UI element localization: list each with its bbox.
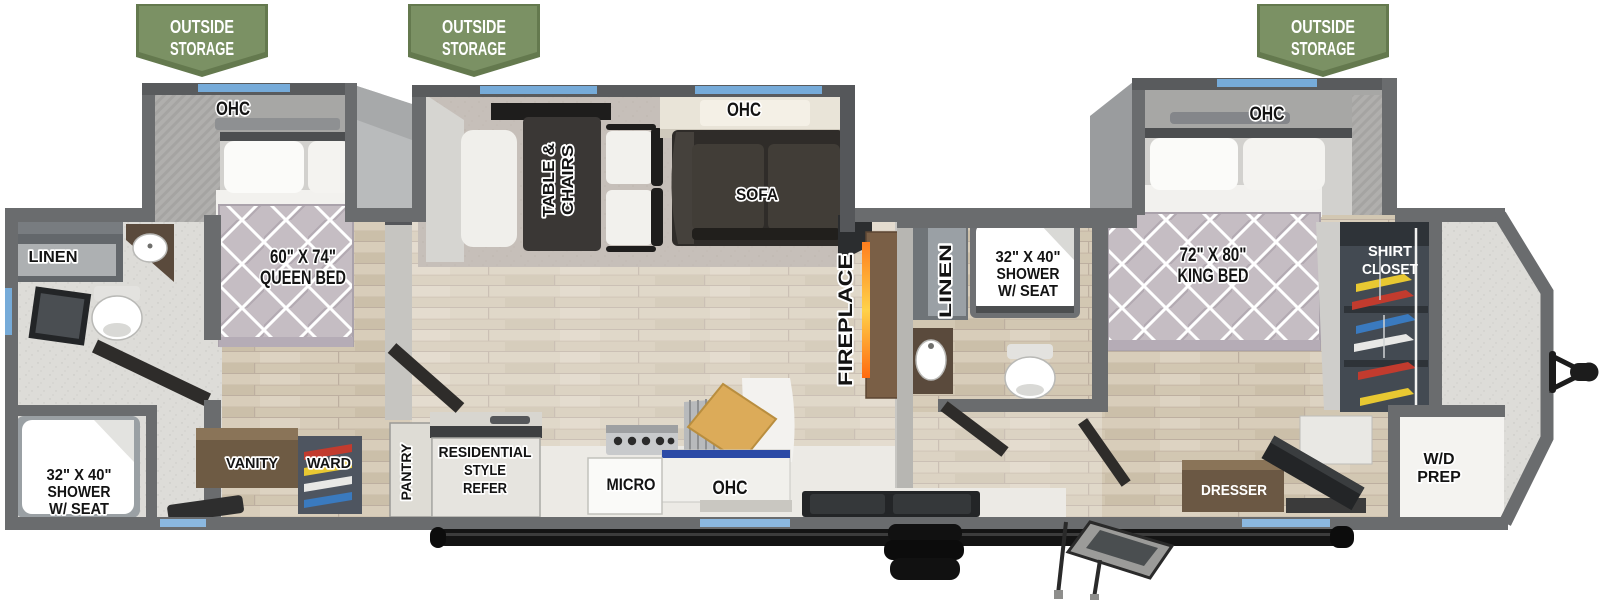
svg-text:WARD: WARD: [307, 455, 351, 472]
svg-text:OHC: OHC: [713, 478, 748, 499]
svg-text:32" X 40": 32" X 40": [47, 467, 112, 484]
svg-text:RESIDENTIAL: RESIDENTIAL: [439, 445, 532, 461]
svg-text:SHOWER: SHOWER: [997, 266, 1060, 283]
svg-text:72" X 80": 72" X 80": [1180, 245, 1247, 266]
svg-text:PREP: PREP: [1417, 469, 1461, 486]
svg-text:W/D: W/D: [1423, 451, 1454, 468]
svg-text:REFER: REFER: [463, 481, 507, 497]
svg-text:OHC: OHC: [1250, 104, 1285, 125]
svg-text:OUTSIDE: OUTSIDE: [170, 17, 234, 37]
svg-text:MICRO: MICRO: [607, 475, 656, 494]
svg-text:QUEEN BED: QUEEN BED: [260, 268, 346, 289]
svg-text:DRESSER: DRESSER: [1201, 482, 1267, 499]
svg-text:SOFA: SOFA: [736, 185, 778, 204]
svg-text:FIREPLACE: FIREPLACE: [836, 254, 857, 386]
svg-text:SHIRT: SHIRT: [1368, 243, 1412, 260]
svg-text:60" X 74": 60" X 74": [270, 247, 336, 268]
svg-text:TABLE &: TABLE &: [541, 143, 558, 217]
svg-text:CHAIRS: CHAIRS: [560, 145, 577, 215]
svg-text:VANITY: VANITY: [226, 455, 278, 472]
svg-text:STORAGE: STORAGE: [170, 39, 234, 59]
svg-text:STYLE: STYLE: [464, 463, 506, 479]
svg-text:STORAGE: STORAGE: [442, 39, 506, 59]
svg-text:OHC: OHC: [216, 99, 250, 120]
svg-text:OUTSIDE: OUTSIDE: [442, 17, 506, 37]
svg-text:LINEN: LINEN: [29, 249, 78, 266]
svg-text:KING BED: KING BED: [1178, 266, 1249, 287]
svg-text:OHC: OHC: [727, 100, 761, 121]
svg-text:CLOSET: CLOSET: [1362, 261, 1418, 278]
svg-text:OUTSIDE: OUTSIDE: [1291, 17, 1355, 37]
svg-text:LINEN: LINEN: [936, 244, 955, 318]
svg-text:32" X 40": 32" X 40": [996, 249, 1061, 266]
svg-text:W/ SEAT: W/ SEAT: [998, 283, 1058, 300]
svg-text:STORAGE: STORAGE: [1291, 39, 1355, 59]
svg-text:SHOWER: SHOWER: [48, 484, 111, 501]
svg-text:W/ SEAT: W/ SEAT: [49, 501, 109, 518]
svg-text:PANTRY: PANTRY: [398, 443, 414, 501]
